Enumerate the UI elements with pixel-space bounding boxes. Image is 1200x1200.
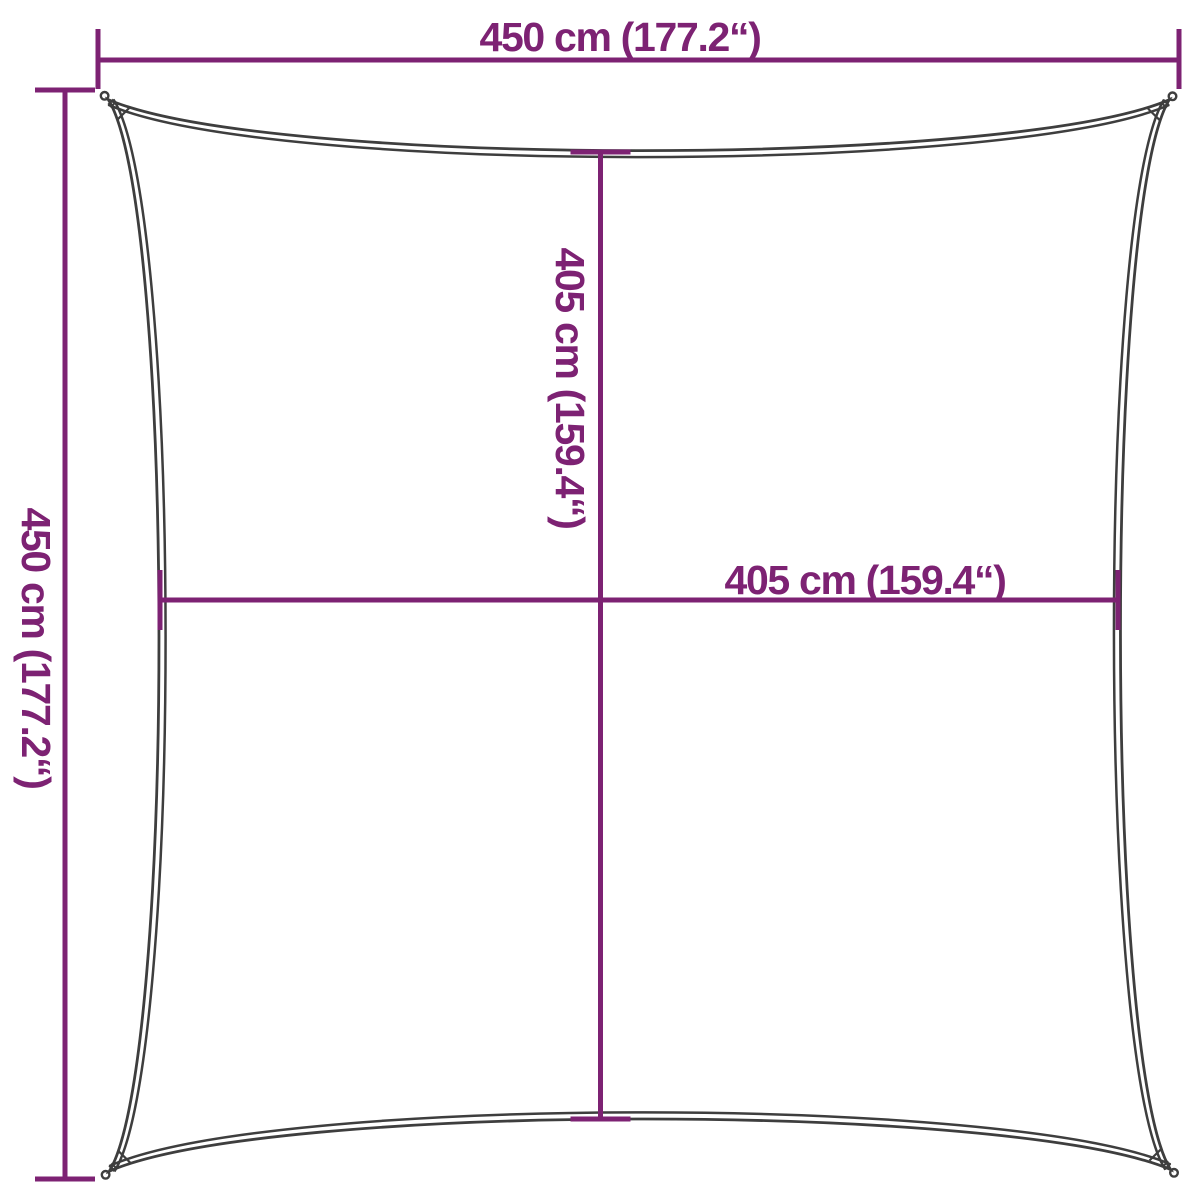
svg-text:450 cm (177.2“): 450 cm (177.2“) (479, 14, 760, 60)
svg-text:450 cm (177.2“): 450 cm (177.2“) (13, 507, 59, 788)
svg-text:405 cm (159.4“): 405 cm (159.4“) (724, 557, 1005, 603)
svg-text:405 cm (159.4“): 405 cm (159.4“) (547, 247, 593, 528)
